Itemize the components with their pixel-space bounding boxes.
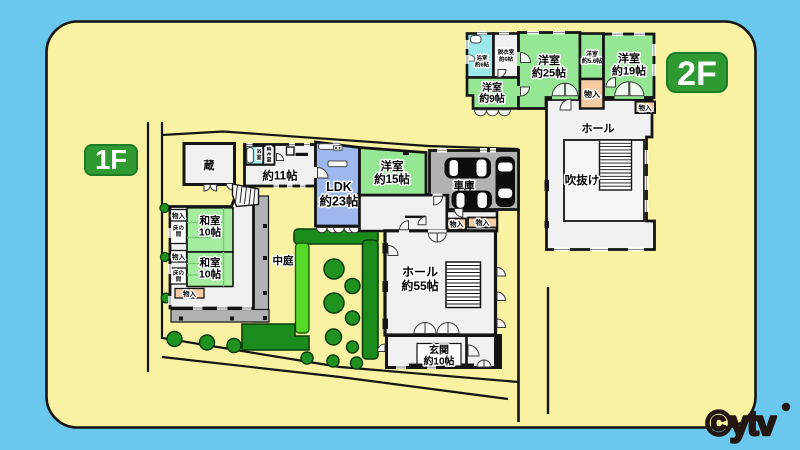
svg-text:和室: 和室 — [199, 256, 221, 269]
svg-text:約6帖: 約6帖 — [499, 55, 514, 63]
svg-text:2F: 2F — [677, 55, 717, 93]
svg-text:1F: 1F — [95, 144, 127, 175]
svg-text:約19帖: 約19帖 — [612, 64, 646, 78]
svg-text:約25帖: 約25帖 — [532, 66, 566, 80]
svg-text:物入: 物入 — [172, 252, 186, 261]
svg-text:脱衣室: 脱衣室 — [498, 48, 515, 56]
svg-text:10帖: 10帖 — [199, 226, 222, 239]
svg-text:約9帖: 約9帖 — [479, 92, 505, 105]
svg-text:車庫: 車庫 — [454, 179, 475, 192]
svg-text:10帖: 10帖 — [199, 268, 222, 281]
svg-text:物入: 物入 — [172, 211, 186, 220]
svg-text:洋室: 洋室 — [586, 50, 598, 58]
svg-text:物入: 物入 — [639, 103, 653, 112]
svg-text:吹抜け: 吹抜け — [565, 173, 600, 187]
svg-text:洋室: 洋室 — [618, 51, 640, 65]
svg-text:ホール: ホール — [582, 122, 615, 135]
svg-text:洋室: 洋室 — [482, 81, 502, 94]
svg-text:LDK: LDK — [326, 180, 352, 194]
svg-text:物入: 物入 — [476, 218, 490, 227]
svg-text:室: 室 — [266, 157, 271, 164]
svg-text:約10帖: 約10帖 — [423, 355, 454, 368]
svg-text:床の: 床の — [173, 224, 185, 232]
svg-text:物入: 物入 — [183, 289, 197, 298]
svg-text:物入: 物入 — [584, 89, 600, 99]
svg-text:蔵: 蔵 — [204, 158, 215, 172]
svg-text:中庭: 中庭 — [273, 254, 294, 267]
svg-text:洋室: 洋室 — [538, 53, 560, 67]
svg-text:ホール: ホール — [402, 265, 438, 279]
svg-text:約6帖: 約6帖 — [475, 61, 490, 69]
svg-text:間: 間 — [176, 230, 182, 238]
svg-text:約11帖: 約11帖 — [262, 169, 298, 183]
svg-text:約15帖: 約15帖 — [374, 172, 410, 186]
svg-text:約5.6帖: 約5.6帖 — [582, 57, 602, 65]
svg-text:約55帖: 約55帖 — [401, 278, 438, 293]
svg-text:©ytv: ©ytv — [706, 404, 777, 443]
svg-text:和室: 和室 — [199, 214, 221, 227]
svg-text:床の: 床の — [173, 269, 185, 277]
svg-text:室: 室 — [256, 154, 261, 161]
svg-text:物入: 物入 — [450, 220, 464, 229]
svg-text:洋室: 洋室 — [381, 159, 404, 173]
svg-text:間: 間 — [176, 275, 182, 283]
svg-text:約23帖: 約23帖 — [320, 194, 359, 209]
svg-text:浴室: 浴室 — [476, 54, 488, 62]
svg-text:玄関: 玄関 — [429, 344, 449, 357]
